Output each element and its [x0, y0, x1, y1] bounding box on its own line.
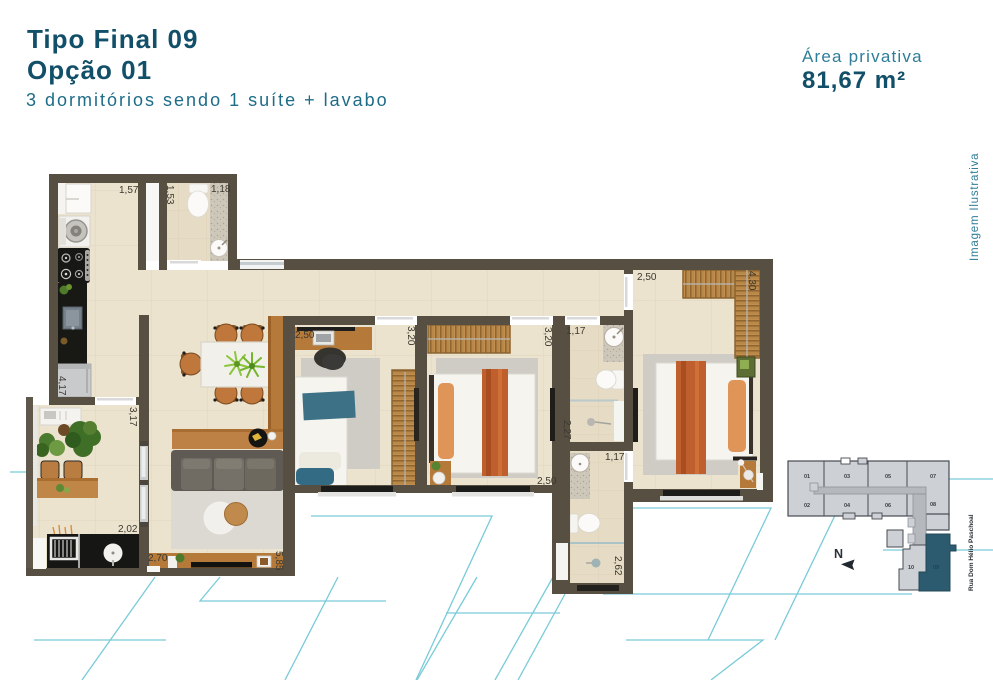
svg-text:Tipo Final 09: Tipo Final 09 — [27, 24, 198, 54]
svg-text:03: 03 — [844, 474, 850, 480]
svg-text:1,57: 1,57 — [119, 185, 139, 196]
svg-text:81,67 m²: 81,67 m² — [802, 67, 906, 94]
svg-text:2,02: 2,02 — [118, 524, 138, 535]
svg-text:2,50: 2,50 — [537, 476, 557, 487]
svg-text:10: 10 — [908, 565, 914, 571]
svg-text:1,53: 1,53 — [164, 185, 175, 205]
svg-text:09: 09 — [933, 565, 939, 571]
svg-text:2,70: 2,70 — [148, 553, 168, 564]
svg-text:4,17: 4,17 — [56, 376, 67, 396]
svg-text:2,50: 2,50 — [295, 330, 315, 341]
svg-text:2,62: 2,62 — [612, 556, 623, 576]
svg-text:07: 07 — [930, 474, 936, 480]
svg-text:3 dormitórios sendo 1 suíte +: 3 dormitórios sendo 1 suíte + lavabo — [26, 90, 389, 110]
svg-text:3,20: 3,20 — [542, 327, 553, 347]
svg-text:08: 08 — [930, 502, 936, 508]
svg-text:06: 06 — [885, 503, 891, 509]
svg-text:05: 05 — [885, 474, 891, 480]
svg-text:2,27: 2,27 — [561, 420, 572, 440]
svg-text:04: 04 — [844, 503, 851, 509]
svg-text:02: 02 — [804, 503, 810, 509]
svg-text:Imagem Ilustrativa: Imagem Ilustrativa — [969, 153, 981, 261]
svg-text:3,17: 3,17 — [127, 407, 138, 427]
svg-text:1,17: 1,17 — [605, 452, 625, 463]
svg-text:1,17: 1,17 — [566, 326, 586, 337]
svg-text:Opção 01: Opção 01 — [27, 55, 152, 85]
svg-text:4,30: 4,30 — [746, 271, 757, 291]
svg-text:1,18: 1,18 — [211, 184, 231, 195]
svg-text:5,85: 5,85 — [273, 551, 284, 571]
svg-text:Rua Dom Hélio Paschoal: Rua Dom Hélio Paschoal — [968, 514, 975, 591]
svg-text:2,50: 2,50 — [637, 272, 657, 283]
svg-text:Área privativa: Área privativa — [802, 47, 923, 66]
svg-text:N: N — [834, 547, 843, 561]
svg-text:3,20: 3,20 — [405, 326, 416, 346]
svg-text:01: 01 — [804, 474, 810, 480]
